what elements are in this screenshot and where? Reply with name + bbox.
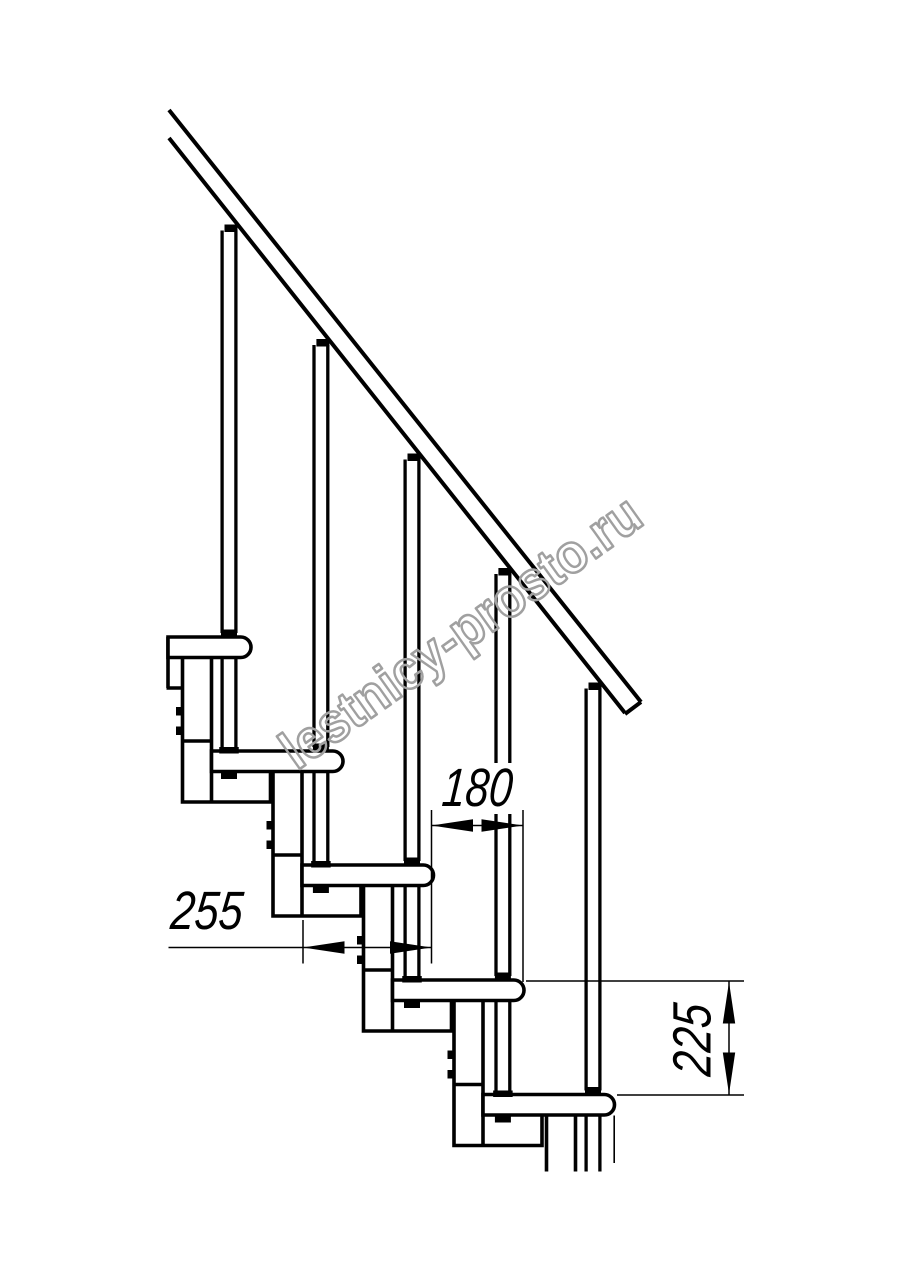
svg-text:180: 180 (440, 758, 515, 818)
svg-text:225: 225 (663, 1000, 723, 1079)
svg-text:255: 255 (168, 882, 247, 942)
